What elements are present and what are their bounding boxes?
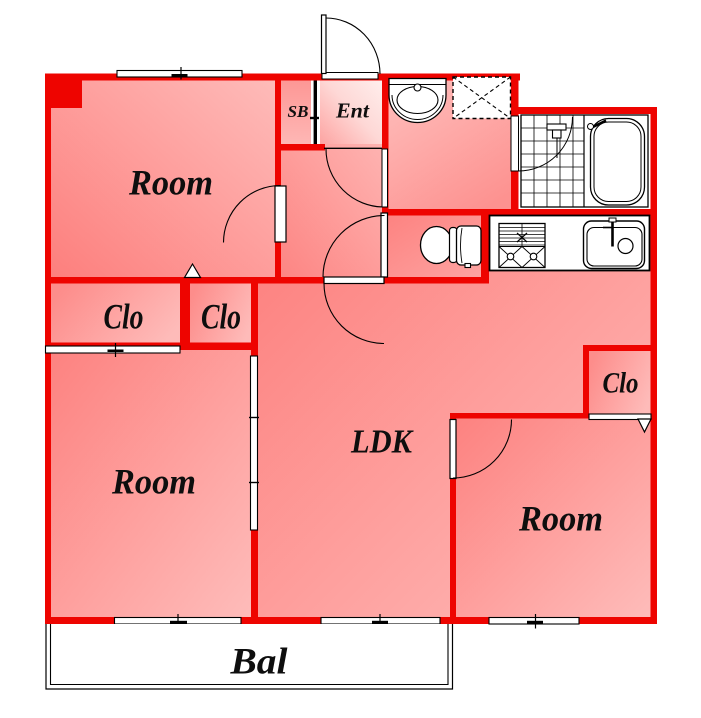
svg-text:Room: Room	[518, 499, 603, 539]
svg-text:Clo: Clo	[201, 297, 241, 337]
svg-text:Room: Room	[128, 163, 213, 203]
svg-text:Ent: Ent	[335, 99, 370, 123]
svg-text:Bal: Bal	[229, 642, 288, 683]
svg-text:Room: Room	[111, 462, 196, 502]
svg-text:LDK: LDK	[350, 424, 414, 461]
svg-text:Clo: Clo	[104, 297, 144, 337]
svg-text:Clo: Clo	[603, 367, 639, 400]
svg-text:SB: SB	[288, 102, 309, 121]
